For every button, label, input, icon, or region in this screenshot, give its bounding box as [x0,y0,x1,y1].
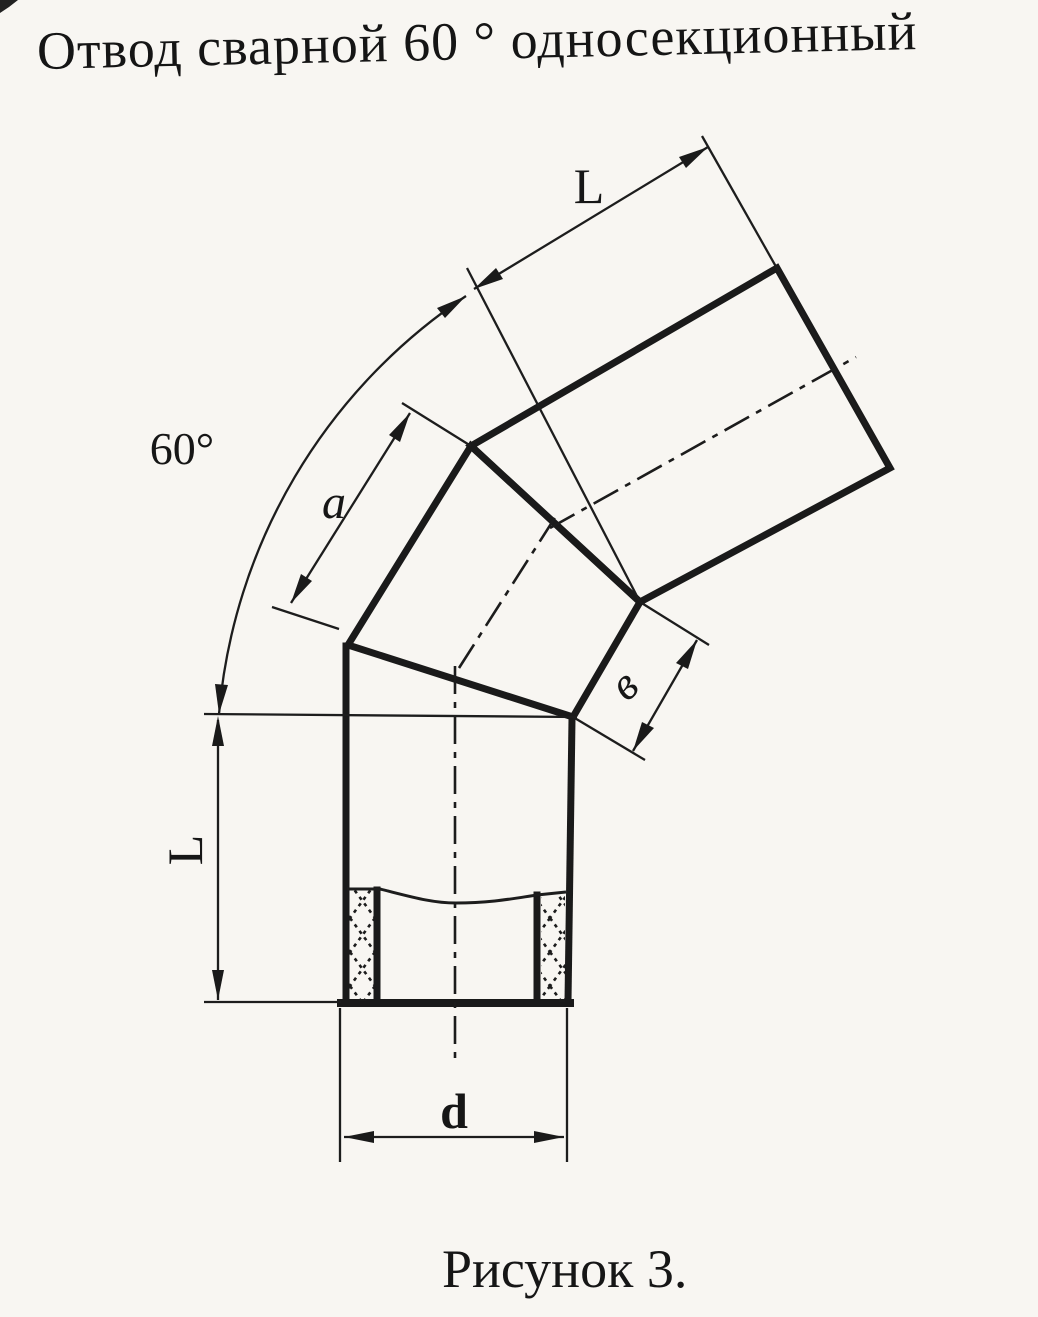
scan-artifact [0,0,18,13]
left-hatch-area [349,890,374,1001]
lower-length-label: L [157,835,213,866]
extension-line [573,717,645,760]
inner-segment-label: в [599,659,648,710]
dimension-a: a [272,403,471,629]
extension-line [204,714,577,717]
extension-line [402,403,471,446]
figure-caption: Рисунок 3. [442,1238,687,1300]
arrowhead [633,722,654,751]
arrowhead [215,684,228,714]
arrowhead [389,413,410,442]
dimension-upper-L: L [467,136,890,602]
elbow-technical-drawing: L 60° a в L d [0,0,1038,1317]
arrowhead [291,574,312,603]
arrowhead [212,716,224,746]
upper-centerline [550,357,856,528]
diameter-label: d [440,1083,468,1139]
arrowhead [534,1131,564,1143]
arrowhead [676,640,697,669]
extension-line [702,136,890,468]
outer-segment-label: a [322,476,346,529]
arrowhead [212,970,224,1000]
wall-cross-section-hatching [347,889,566,1002]
arrowhead [679,147,708,168]
middle-section [348,446,640,717]
extension-line [640,602,709,645]
centerlines [455,357,856,1058]
right-hatch-area [541,895,565,1002]
arrowhead [474,268,503,289]
scanned-page: { "page": { "title": "Отвод сварной 60 °… [0,0,1038,1317]
extension-line [272,607,339,629]
dimension-angle-60: 60° [150,296,466,714]
pipe-outline [341,268,890,1003]
arrowhead [344,1131,374,1143]
angle-label: 60° [150,423,214,474]
middle-centerline [459,516,556,668]
dimension-d: d [340,1008,567,1162]
lower-pipe-right-wall [568,719,572,1001]
upper-length-label: L [574,158,605,214]
